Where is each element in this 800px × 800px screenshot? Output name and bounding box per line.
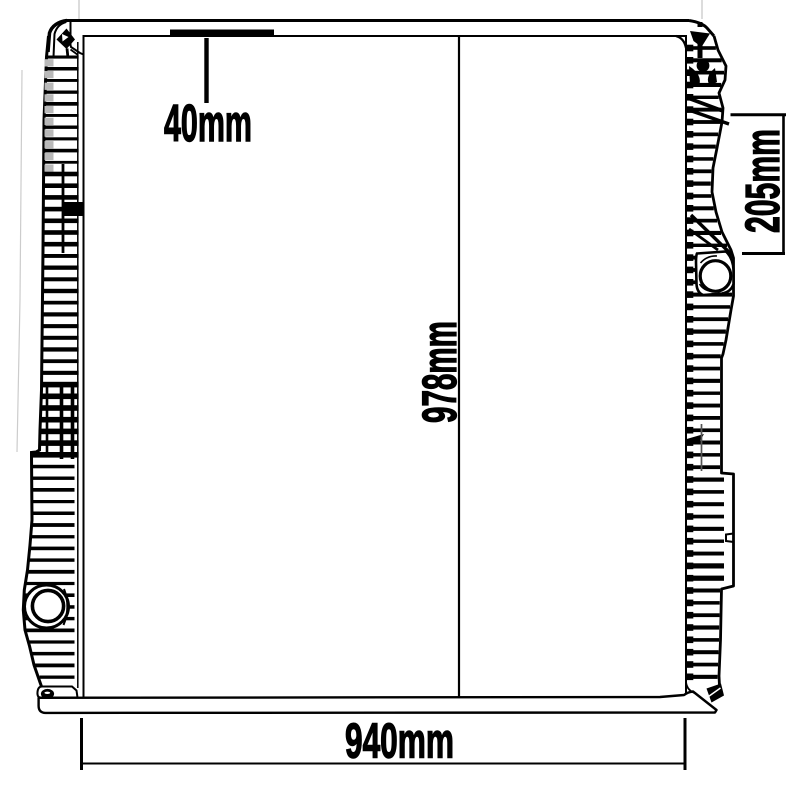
svg-text:205mm: 205mm [737, 129, 790, 233]
svg-text:978mm: 978mm [414, 321, 467, 423]
svg-text:40mm: 40mm [164, 95, 252, 153]
svg-text:940mm: 940mm [345, 715, 454, 769]
